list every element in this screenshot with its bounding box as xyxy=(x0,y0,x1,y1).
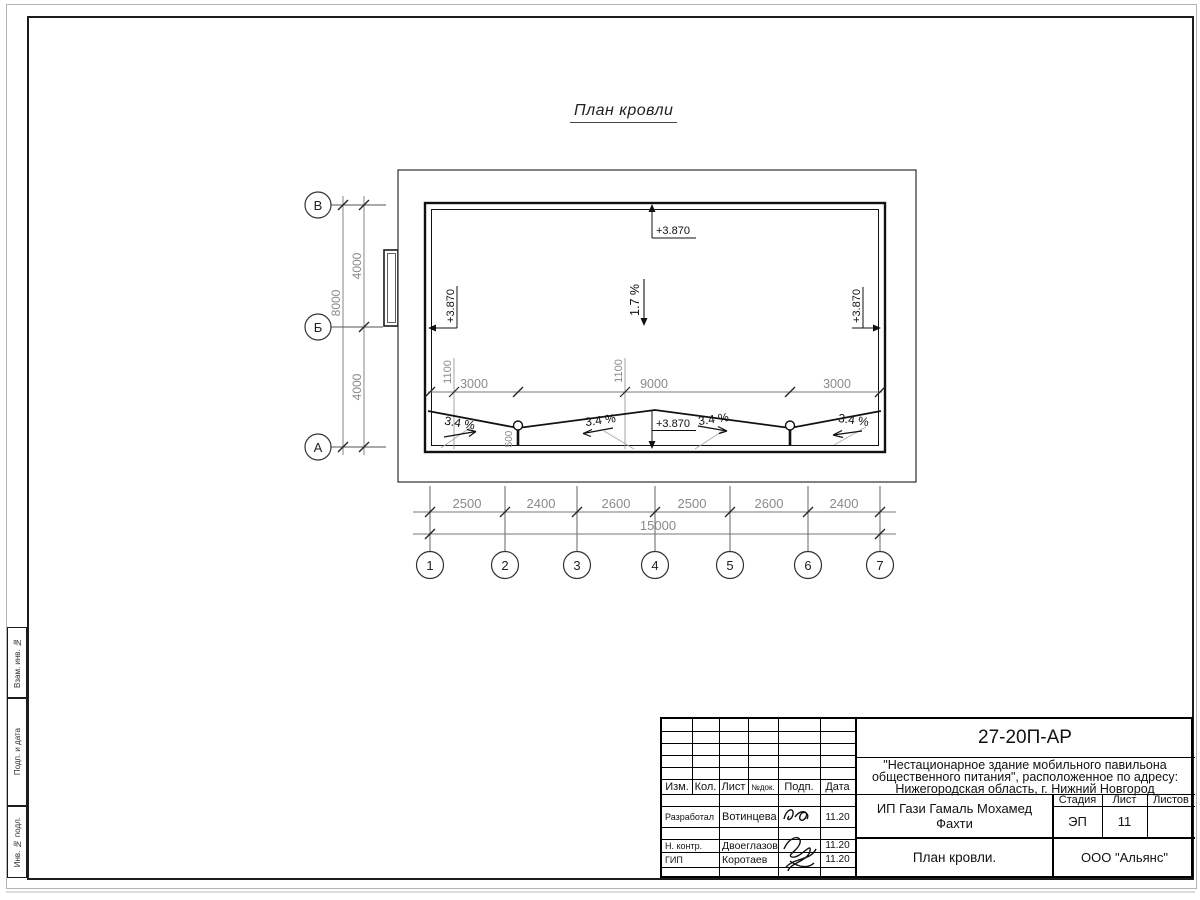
tb-header-data: Дата xyxy=(820,780,855,794)
frame-stamp-label: Взам. инв. № xyxy=(13,638,22,688)
tb-sheet-header: Лист xyxy=(1102,794,1147,806)
tb-org: ООО "Альянс" xyxy=(1054,839,1195,876)
tb-line xyxy=(719,719,720,876)
frame-stamp-vzam: Взам. инв. № xyxy=(7,627,27,698)
signature-dvoeglazov-korotaev xyxy=(776,833,822,877)
tb-line xyxy=(662,731,855,732)
main-slope-label: 1.7 % xyxy=(628,284,642,316)
tb-sheets-header: Листов xyxy=(1147,794,1195,806)
col-axis-label: 3 xyxy=(573,558,580,573)
elevation-value: +3.870 xyxy=(656,225,690,237)
tb-stage-header: Стадия xyxy=(1053,794,1102,806)
tb-doc-code: 27-20П-АР xyxy=(857,721,1193,755)
frame-stamp-inv: Инв. № подл. xyxy=(7,806,27,878)
col-axis-label: 7 xyxy=(876,558,883,573)
tb-sheet-value: 11 xyxy=(1102,807,1147,836)
col-dim-seg: 2400 xyxy=(830,496,859,511)
tb-role: ГИП xyxy=(665,853,719,866)
elevation-value: +3.870 xyxy=(656,418,690,430)
sheet-shadow xyxy=(6,891,1195,893)
offset-dim: 1100 xyxy=(613,359,625,383)
tb-line xyxy=(662,806,855,807)
tb-line xyxy=(662,867,855,868)
drawing-sheet: Взам. инв. № Подп. и дата Инв. № подл. П… xyxy=(0,0,1200,900)
tb-line xyxy=(662,827,855,828)
tb-line xyxy=(662,767,855,768)
tb-header-kol: Кол. xyxy=(692,780,719,794)
frame-stamp-podp: Подп. и дата xyxy=(7,698,27,806)
tb-date: 11.20 xyxy=(820,853,855,866)
tb-client: ИП Гази Гамаль Мохамед Фахти xyxy=(857,795,1052,836)
col-axis-label: 1 xyxy=(426,558,433,573)
tb-header-ndok: №док. xyxy=(748,780,778,794)
tb-date: 11.20 xyxy=(820,839,855,852)
col-dim-seg: 2500 xyxy=(678,496,707,511)
tb-line xyxy=(662,743,855,744)
tb-name: Вотинцева xyxy=(722,809,778,825)
tb-header-izm: Изм. xyxy=(662,780,692,794)
drain-dim: 500 xyxy=(504,430,515,447)
tb-line xyxy=(662,755,855,756)
frame-stamp-label: Инв. № подл. xyxy=(13,817,22,867)
roof-drain xyxy=(786,421,795,430)
tb-role: Разработал xyxy=(665,809,719,825)
col-dim-total: 15000 xyxy=(640,518,676,533)
elevation-value: +3.870 xyxy=(445,289,457,323)
col-axis-label: 6 xyxy=(804,558,811,573)
row-dim-total: 8000 xyxy=(329,289,343,316)
tb-stage-value: ЭП xyxy=(1053,807,1102,836)
col-dim-seg: 2600 xyxy=(755,496,784,511)
col-axis-label: 4 xyxy=(651,558,658,573)
ridge-dim: 3000 xyxy=(823,377,851,391)
col-axis-label: 5 xyxy=(726,558,733,573)
frame-stamp-label: Подп. и дата xyxy=(13,728,22,775)
title-block: Изм. Кол. Лист №док. Подп. Дата Разработ… xyxy=(660,717,1193,878)
tb-sheets-value xyxy=(1147,807,1195,836)
tb-header-list: Лист xyxy=(719,780,748,794)
tb-name: Коротаев xyxy=(722,853,780,866)
tb-name: Двоеглазов xyxy=(722,839,780,852)
elevation-value: +3.870 xyxy=(851,289,863,323)
tb-date: 11.20 xyxy=(820,809,855,825)
ridge-dim: 9000 xyxy=(640,377,668,391)
row-axis-label: В xyxy=(314,198,323,213)
col-dim-seg: 2500 xyxy=(453,496,482,511)
tb-header-podp: Подп. xyxy=(778,780,820,794)
side-porch xyxy=(384,250,398,326)
roof-outline-outer xyxy=(425,203,885,452)
row-axis-lines xyxy=(331,205,386,447)
signature-votintseva xyxy=(780,805,820,827)
row-dim-seg: 4000 xyxy=(350,252,364,279)
col-dim-seg: 2400 xyxy=(527,496,556,511)
tb-sheet-name: План кровли. xyxy=(857,839,1052,876)
offset-dim: 1100 xyxy=(442,360,454,384)
col-axis-label: 2 xyxy=(501,558,508,573)
roof-plan-drawing: 3000 9000 3000 1100 1100 500 3.4 % 3.4 % xyxy=(270,80,950,590)
row-axis-label: А xyxy=(314,440,323,455)
ridge-dim: 3000 xyxy=(460,377,488,391)
row-dim-seg: 4000 xyxy=(350,373,364,400)
col-dim-seg: 2600 xyxy=(602,496,631,511)
tb-role: Н. контр. xyxy=(665,840,719,852)
roof-drain xyxy=(514,421,523,430)
row-axis-label: Б xyxy=(314,320,323,335)
